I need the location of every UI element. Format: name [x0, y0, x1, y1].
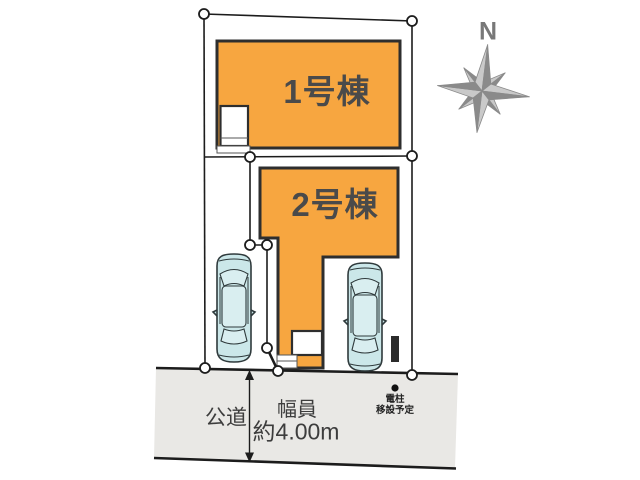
survey-point [407, 151, 417, 161]
survey-point [200, 363, 210, 373]
building-1-entrance-step [217, 146, 250, 153]
survey-point [407, 370, 417, 380]
survey-point [273, 366, 283, 376]
parked-car-right [344, 263, 386, 371]
road-width-value: 約4.00m [253, 419, 340, 444]
compass-rose [432, 39, 535, 139]
survey-point [245, 152, 255, 162]
wall-bar [391, 336, 399, 362]
survey-point [262, 240, 272, 250]
survey-point [199, 9, 209, 19]
survey-point [407, 16, 417, 26]
road-label: 公道 [205, 406, 247, 429]
building-1-entrance-porch [221, 106, 249, 146]
building-2-label: 2号棟 [291, 187, 378, 223]
utility-pole-label-line1: 電柱 [385, 395, 404, 405]
survey-point [262, 343, 272, 353]
compass-north-label: N [479, 18, 497, 46]
utility-pole-dot [391, 384, 398, 391]
site-plan: 1号棟 2号棟 公道 幅員 約4.00m 電柱 移設予定 N [0, 0, 640, 480]
building-2-entrance-porch [292, 331, 322, 355]
survey-point [245, 240, 255, 250]
utility-pole-label-line2: 移設予定 [376, 406, 414, 416]
parked-car-left [213, 254, 255, 362]
building-1-label: 1号棟 [283, 74, 370, 110]
